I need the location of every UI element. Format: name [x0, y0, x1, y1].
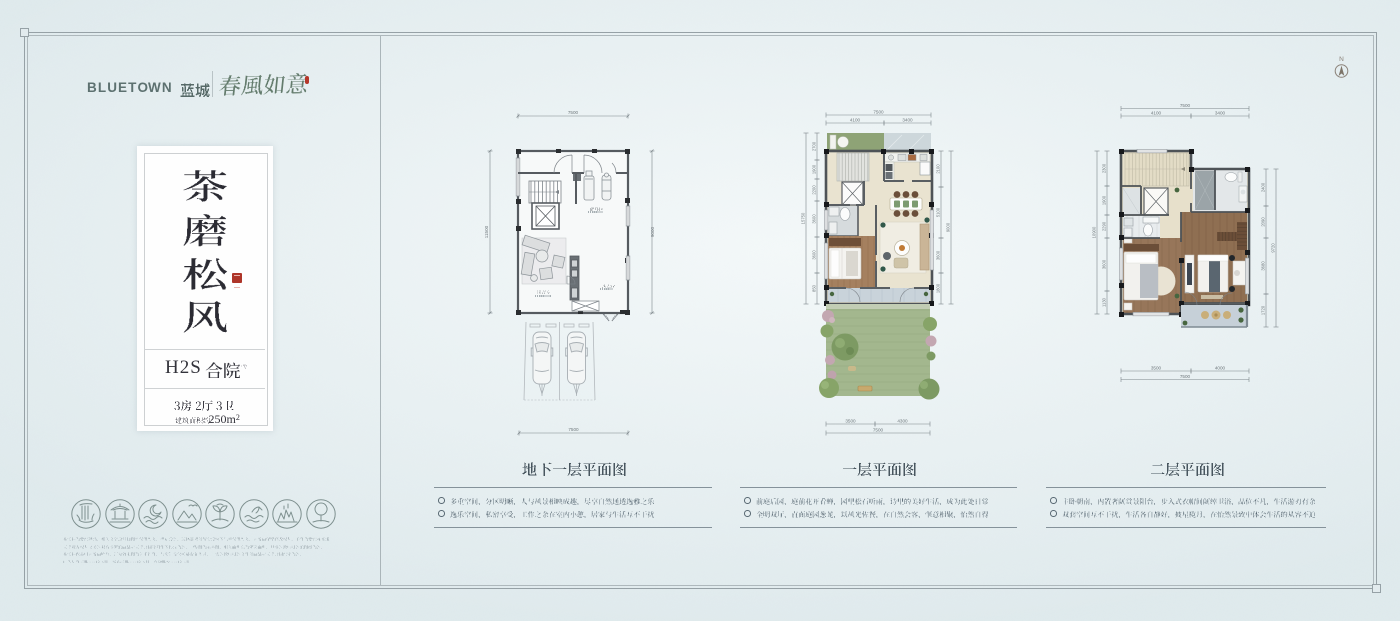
- svg-text:9000: 9000: [650, 226, 655, 237]
- svg-text:3600: 3600: [935, 250, 940, 260]
- svg-text:7500: 7500: [1180, 374, 1191, 379]
- svg-text:2090: 2090: [1260, 217, 1265, 227]
- svg-text:10900: 10900: [1091, 226, 1096, 238]
- svg-text:3600: 3600: [811, 214, 816, 224]
- svg-text:7500: 7500: [568, 110, 579, 115]
- svg-text:3680: 3680: [1260, 261, 1265, 271]
- svg-text:1720: 1720: [1260, 305, 1265, 315]
- svg-text:3400: 3400: [1215, 110, 1226, 115]
- svg-text:9000: 9000: [945, 222, 950, 232]
- svg-text:1900: 1900: [811, 164, 816, 174]
- svg-text:2100: 2100: [935, 164, 940, 174]
- svg-text:9720: 9720: [1270, 243, 1275, 253]
- svg-text:4000: 4000: [1215, 365, 1226, 370]
- svg-text:2400: 2400: [1260, 182, 1265, 192]
- svg-text:N: N: [1339, 56, 1344, 63]
- svg-text:1130: 1130: [1101, 297, 1106, 307]
- svg-text:1800: 1800: [935, 283, 940, 293]
- svg-text:15750: 15750: [800, 212, 805, 224]
- svg-text:4300: 4300: [897, 418, 908, 423]
- svg-text:1900: 1900: [1101, 195, 1106, 205]
- svg-text:11500: 11500: [484, 225, 489, 238]
- svg-text:3500: 3500: [845, 418, 856, 423]
- svg-text:7500: 7500: [568, 427, 579, 432]
- svg-text:2200: 2200: [811, 185, 816, 195]
- svg-text:3400: 3400: [902, 117, 913, 122]
- svg-text:4100: 4100: [1151, 110, 1162, 115]
- svg-text:3600: 3600: [811, 250, 816, 260]
- svg-text:7500: 7500: [1180, 103, 1191, 108]
- svg-text:2300: 2300: [1101, 163, 1106, 173]
- svg-text:4100: 4100: [850, 117, 861, 122]
- svg-text:7500: 7500: [873, 427, 884, 432]
- svg-text:7500: 7500: [873, 109, 884, 114]
- svg-text:850: 850: [811, 284, 816, 292]
- svg-text:2700: 2700: [811, 141, 816, 151]
- svg-text:3600: 3600: [1101, 259, 1106, 269]
- svg-text:2290: 2290: [1101, 221, 1106, 231]
- svg-text:3500: 3500: [1151, 365, 1162, 370]
- svg-text:5100: 5100: [935, 207, 940, 217]
